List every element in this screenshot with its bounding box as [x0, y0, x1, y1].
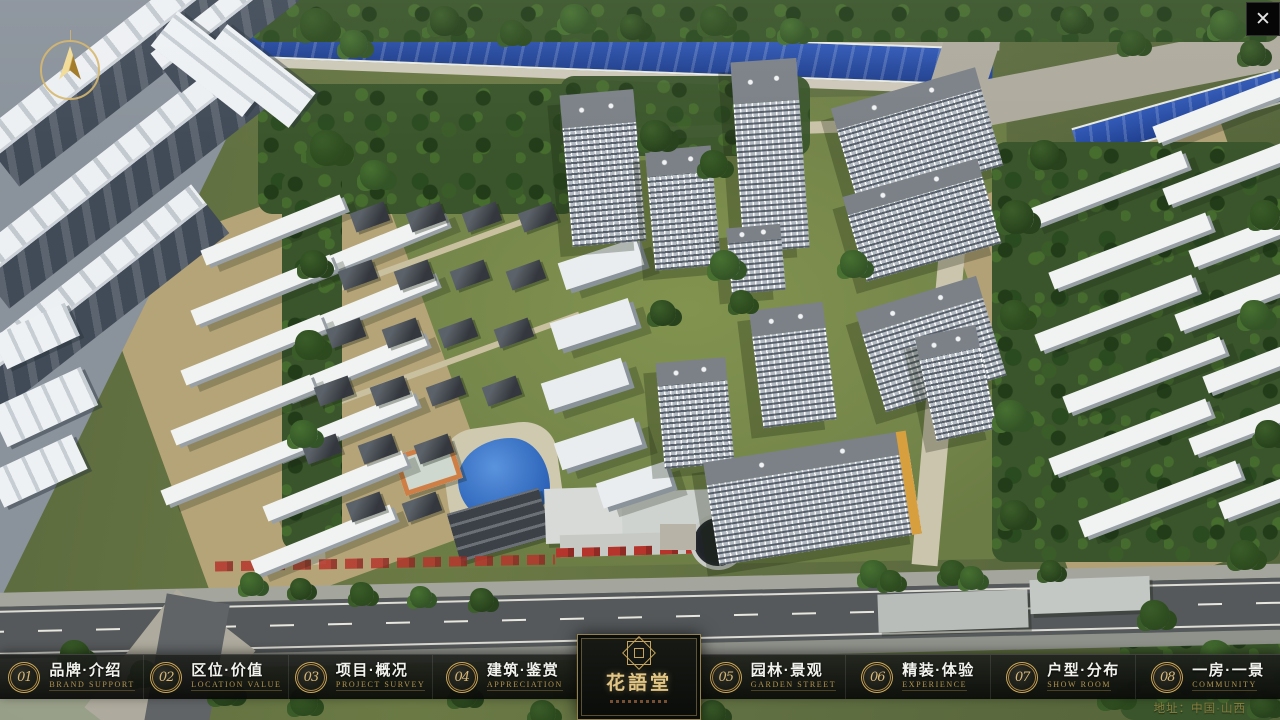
compass-icon[interactable] [40, 40, 100, 100]
nav-label-zh: 精装·体验 [902, 663, 975, 678]
close-button[interactable]: ✕ [1246, 2, 1280, 36]
map-tree-cluster [1250, 200, 1280, 230]
map-building-south [877, 589, 1028, 632]
map-tree-cluster [1255, 420, 1280, 448]
map-tree-cluster [780, 18, 806, 44]
map-tree-cluster [530, 700, 556, 720]
nav-number-badge: 04 [446, 662, 478, 693]
nav-label-en: EXPERIENCE [902, 681, 967, 691]
map-tree-cluster [560, 4, 590, 34]
nav-label-zh: 一房·一景 [1192, 663, 1265, 678]
map-tower-roof [730, 58, 799, 104]
map-tree-cluster [500, 20, 526, 46]
nav-label-zh: 品牌·介绍 [49, 663, 122, 678]
map-tree-cluster [840, 250, 868, 278]
presentation-window: ✕ 01 品牌·介绍 BRAND SUPPORT 02 区位·价值 LOCATI… [0, 0, 1280, 720]
map-tower-facade [752, 328, 837, 428]
nav-number-badge: 03 [295, 662, 327, 693]
map-tree-cluster [1120, 30, 1146, 56]
map-gate [660, 524, 696, 550]
nav-item-garden[interactable]: 05 园林·景观 GARDEN STREET [701, 655, 846, 699]
map-tree-cluster [700, 700, 726, 720]
nav-item-project[interactable]: 03 项目·概况 PROJECT SURVEY [289, 655, 433, 699]
nav-number-badge: 07 [1006, 662, 1038, 693]
map-tree-cluster [350, 582, 374, 606]
nav-number-badge: 02 [150, 662, 182, 693]
close-icon: ✕ [1255, 8, 1271, 31]
map-tree-cluster [290, 578, 312, 600]
map-tree-cluster [290, 420, 318, 448]
map-highrise-tower [560, 89, 647, 247]
map-highrise-tower [656, 357, 735, 469]
map-tree-cluster [300, 8, 334, 42]
logo-subtitle-rule [610, 700, 668, 703]
map-tree-cluster [995, 400, 1027, 432]
navbar-right-group: 05 园林·景观 GARDEN STREET 06 精装·体验 EXPERIEN… [701, 655, 1280, 699]
nav-number-badge: 08 [1151, 662, 1183, 693]
map-tower-facade [658, 380, 735, 468]
nav-label-en: LOCATION VALUE [191, 681, 281, 691]
map-tree-cluster [295, 330, 325, 360]
map-tree-cluster [430, 6, 460, 36]
nav-number-badge: 06 [861, 662, 893, 693]
map-tree-cluster [410, 586, 432, 608]
map-tree-cluster [650, 300, 676, 326]
nav-label-en: COMMUNITY [1192, 681, 1257, 691]
map-tree-cluster [640, 120, 672, 152]
map-tree-cluster [1230, 540, 1260, 570]
map-tree-cluster [300, 250, 328, 278]
map-tree-cluster [340, 30, 368, 58]
navbar-left-group: 01 品牌·介绍 BRAND SUPPORT 02 区位·价值 LOCATION… [0, 655, 577, 699]
nav-label-zh: 园林·景观 [751, 663, 824, 678]
map-tree-cluster [1060, 6, 1088, 34]
map-tree-cluster [310, 130, 346, 166]
map-tree-cluster [710, 250, 740, 280]
nav-item-floorplan[interactable]: 07 户型·分布 SHOW ROOM [991, 655, 1136, 699]
map-tree-cluster [730, 290, 754, 314]
nav-label-zh: 区位·价值 [191, 663, 264, 678]
map-tree-cluster [700, 6, 730, 36]
seal-center [634, 648, 644, 658]
map-tree-cluster [1240, 40, 1266, 66]
map-tree-cluster [470, 588, 494, 612]
map-tree-cluster [620, 14, 646, 40]
project-address: 地址：中国·山西 [1154, 700, 1246, 716]
map-tree-cluster [1210, 10, 1240, 40]
nav-label-en: APPRECIATION [487, 681, 563, 691]
map-tower-facade [562, 122, 646, 247]
nav-item-brand[interactable]: 01 品牌·介绍 BRAND SUPPORT [0, 655, 144, 699]
nav-item-view[interactable]: 08 一房·一景 COMMUNITY [1136, 655, 1280, 699]
map-tower-facade [647, 172, 721, 271]
project-3d-map[interactable] [0, 0, 1280, 720]
nav-number-badge: 01 [8, 662, 40, 693]
map-tree-cluster [700, 150, 728, 178]
nav-label-en: SHOW ROOM [1047, 681, 1111, 691]
project-logo-panel[interactable]: 花語堂 [577, 634, 701, 720]
nav-label-zh: 建筑·鉴赏 [487, 663, 560, 678]
nav-label-en: PROJECT SURVEY [336, 681, 425, 691]
map-tree-cluster [1040, 560, 1062, 582]
seal-emblem-icon [627, 641, 651, 665]
map-tree-cluster [960, 566, 984, 590]
nav-label-zh: 户型·分布 [1047, 663, 1120, 678]
nav-item-location[interactable]: 02 区位·价值 LOCATION VALUE [144, 655, 288, 699]
map-tree-cluster [1140, 600, 1170, 630]
map-tree-cluster [1030, 140, 1060, 170]
map-tree-cluster [1240, 300, 1270, 330]
map-tree-cluster [1000, 300, 1030, 330]
nav-label-en: BRAND SUPPORT [49, 681, 134, 691]
nav-item-interior[interactable]: 06 精装·体验 EXPERIENCE [846, 655, 991, 699]
project-name: 花語堂 [606, 668, 672, 695]
map-tree-cluster [1000, 500, 1030, 530]
map-highrise-tower [749, 302, 837, 428]
nav-label-zh: 项目·概况 [336, 663, 409, 678]
nav-number-badge: 05 [710, 662, 742, 693]
map-tree-cluster [1000, 200, 1034, 234]
nav-item-architecture[interactable]: 04 建筑·鉴赏 APPRECIATION [433, 655, 577, 699]
compass-needle [59, 46, 81, 88]
nav-label-en: GARDEN STREET [751, 681, 836, 691]
map-tree-cluster [240, 572, 264, 596]
map-tree-cluster [360, 160, 390, 190]
map-tree-cluster [880, 570, 902, 592]
map-highrise-tower [730, 58, 809, 252]
compass-north-tick [70, 30, 71, 42]
